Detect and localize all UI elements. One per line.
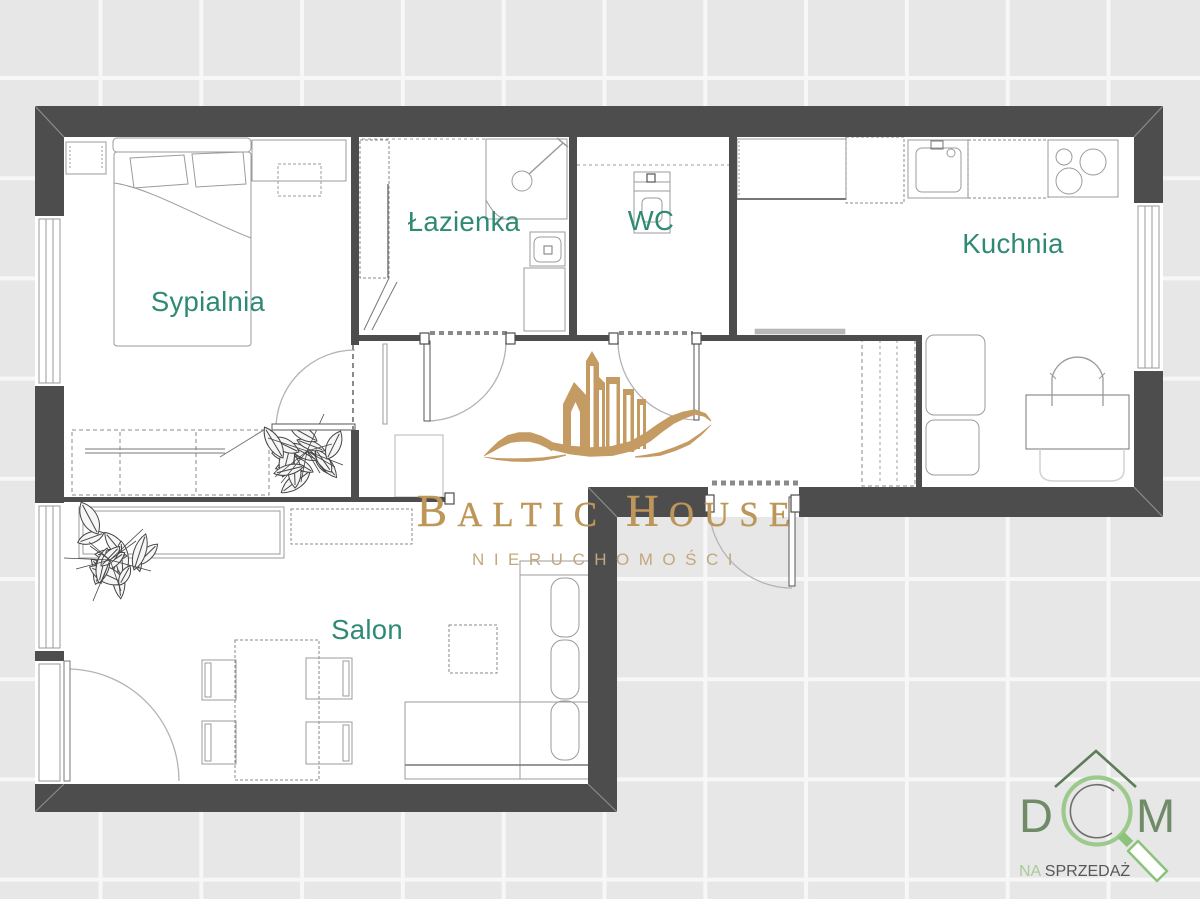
- svg-text:Kuchnia: Kuchnia: [962, 228, 1064, 259]
- svg-text:M: M: [1136, 789, 1175, 842]
- svg-text:WC: WC: [628, 205, 674, 236]
- svg-text:Sypialnia: Sypialnia: [151, 286, 266, 317]
- svg-text:NIERUCHOMOŚCI: NIERUCHOMOŚCI: [472, 550, 742, 569]
- svg-text:NA SPRZEDAŻ: NA SPRZEDAŻ: [1019, 861, 1130, 880]
- svg-text:Łazienka: Łazienka: [408, 206, 521, 237]
- svg-text:Salon: Salon: [331, 614, 403, 645]
- svg-text:D: D: [1019, 789, 1053, 842]
